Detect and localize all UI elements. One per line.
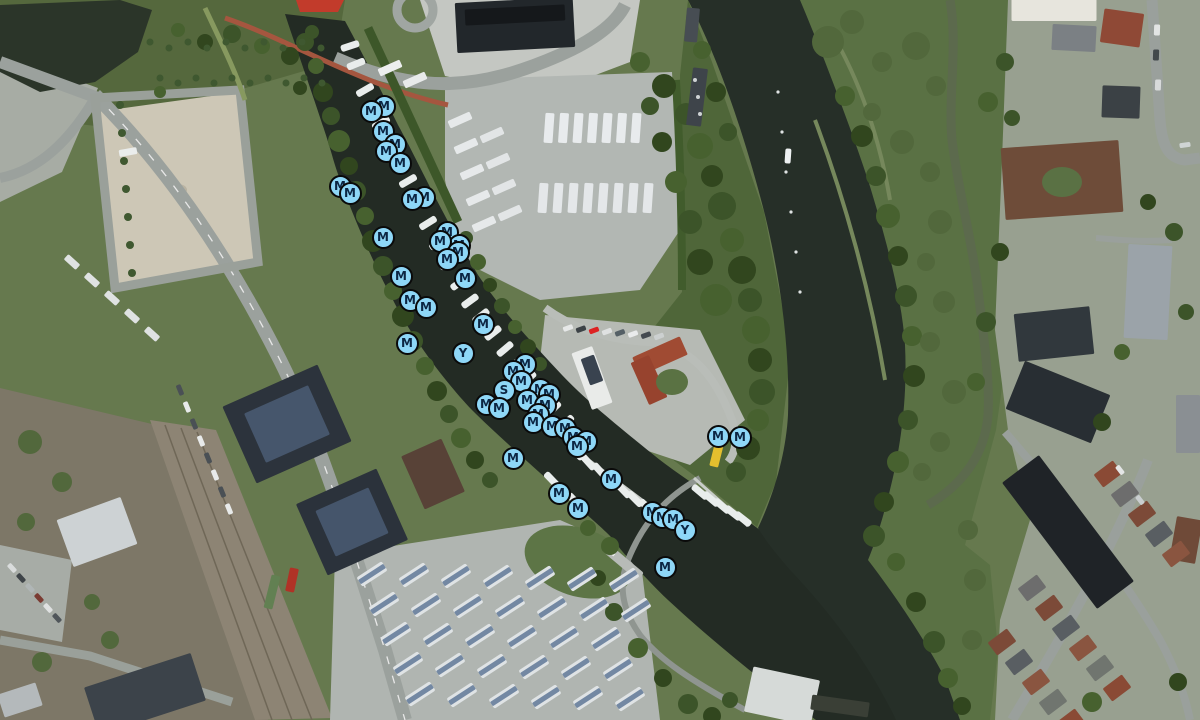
map-marker-m-31[interactable]: M — [488, 397, 511, 420]
map-marker-m-15[interactable]: M — [436, 248, 459, 271]
map-marker-m-43[interactable]: M — [567, 497, 590, 520]
map-marker-m-39[interactable]: M — [566, 435, 589, 458]
map-marker-m-41[interactable]: M — [600, 468, 623, 491]
map-marker-m-19[interactable]: M — [415, 296, 438, 319]
map-marker-m-16[interactable]: M — [390, 265, 413, 288]
map-marker-y-47[interactable]: Y — [674, 519, 697, 542]
map-marker-m-21[interactable]: M — [396, 332, 419, 355]
map-marker-y-22[interactable]: Y — [452, 342, 475, 365]
map-marker-m-1[interactable]: M — [360, 100, 383, 123]
map-marker-m-50[interactable]: M — [729, 426, 752, 449]
map-marker-m-5[interactable]: M — [389, 152, 412, 175]
map-marker-m-17[interactable]: M — [454, 267, 477, 290]
map-marker-m-7[interactable]: M — [339, 182, 362, 205]
map-marker-m-42[interactable]: M — [548, 482, 571, 505]
map-marker-m-20[interactable]: M — [472, 313, 495, 336]
map-marker-m-10[interactable]: M — [372, 226, 395, 249]
map-marker-m-48[interactable]: M — [654, 556, 677, 579]
map-marker-m-49[interactable]: M — [707, 425, 730, 448]
marker-layer: MMMMMMMMMMMMMMMMMMMMMMYMMMSMMMMMMMMMMMMM… — [0, 0, 1200, 720]
map-marker-m-9[interactable]: M — [401, 188, 424, 211]
map-marker-m-40[interactable]: M — [502, 447, 525, 470]
map-canvas[interactable]: MMMMMMMMMMMMMMMMMMMMMMYMMMSMMMMMMMMMMMMM… — [0, 0, 1200, 720]
